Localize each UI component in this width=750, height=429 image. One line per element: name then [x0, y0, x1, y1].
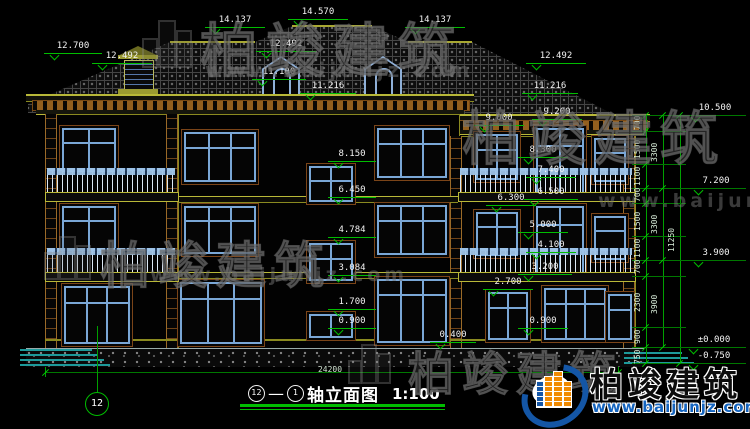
level-marker: 9.000 [474, 112, 524, 126]
axis-grid-line [97, 326, 98, 392]
title-scale: 1:100 [392, 385, 440, 403]
level-marker: 8.300 [518, 144, 568, 158]
roof-ridge-left [170, 41, 255, 43]
balcony-slab [45, 192, 179, 202]
title-underline [240, 409, 445, 410]
dimension-label: 1500 [633, 208, 645, 234]
level-marker: 8.150 [328, 148, 376, 162]
entry-steps-left [20, 349, 92, 351]
level-marker: 6.500 [524, 186, 578, 200]
dimension-label: 3300 [650, 206, 662, 242]
dimension-label: 1500 [633, 136, 645, 162]
window [377, 205, 447, 255]
dimension-label: 700 [633, 257, 645, 277]
level-marker: 11.216 [300, 80, 356, 94]
level-marker: 5.000 [518, 219, 568, 233]
level-marker: 14.570 [288, 6, 348, 20]
level-marker: 3.084 [328, 262, 376, 276]
logo-building-icon [536, 380, 544, 408]
dimension-label: 700 [633, 185, 645, 205]
level-marker: 0.900 [328, 315, 376, 329]
dimension-label: 11250 [667, 214, 679, 266]
level-marker: 9.200 [532, 106, 582, 120]
dimension-label: 3300 [650, 134, 662, 170]
dimension-label: 1100 [633, 237, 645, 259]
dimension-label: 3900 [650, 286, 662, 322]
level-marker: 11.216 [522, 80, 578, 94]
level-marker: 14.137 [405, 14, 465, 28]
level-marker: 0.900 [518, 315, 568, 329]
corner-pilaster [45, 114, 57, 348]
level-marker: 12.492 [526, 50, 586, 64]
balcony-slab [45, 272, 179, 282]
level-marker: 11.100 [252, 66, 306, 80]
logo-building-icon [563, 381, 572, 408]
corner-pilaster [166, 114, 178, 348]
level-marker: 4.100 [526, 239, 576, 253]
drawing-title: 12 — 1 轴立面图 1:100 [248, 381, 440, 406]
window [608, 294, 632, 340]
window [180, 282, 262, 344]
dimension-label: 2300 [633, 289, 645, 315]
dimension-label: 700 [633, 112, 645, 134]
cad-elevation-drawing: 14.137 14.570 14.137 12.700 12.492 12.49… [0, 0, 750, 429]
window [62, 128, 116, 172]
level-marker: 12.492 [256, 38, 316, 52]
level-marker: 0.400 [430, 329, 476, 343]
logo-building-icon [544, 376, 553, 408]
entry-steps-left [20, 354, 98, 356]
level-marker: ±0.000 [683, 334, 745, 348]
title-underline [240, 404, 445, 407]
baijun-logo: 柏竣建筑 www.baijunjz.com [520, 360, 740, 428]
level-marker: 2.700 [483, 276, 533, 290]
level-marker: 3.200 [518, 261, 572, 275]
title-axis-bubble-from: 12 [248, 385, 265, 402]
roof-ridge-center [292, 25, 372, 27]
axis-bubble-12: 12 [85, 392, 109, 416]
level-marker: 7.400 [526, 164, 576, 178]
level-marker: 3.900 [688, 247, 744, 261]
window [377, 128, 447, 178]
roof-ridge-right [408, 41, 472, 43]
level-marker: 12.492 [92, 50, 152, 64]
balcony-railing [47, 168, 175, 195]
window [62, 206, 116, 250]
window [184, 206, 256, 254]
level-marker: 10.500 [685, 102, 745, 116]
logo-building-icon [553, 371, 563, 408]
level-marker: 1.700 [328, 296, 376, 310]
level-marker: 14.137 [205, 14, 265, 28]
title-dash: — [268, 384, 284, 403]
dimension-label: 24200 [300, 365, 360, 374]
level-marker: 6.450 [328, 184, 376, 198]
logo-url-text: www.baijunjz.com [592, 398, 750, 416]
title-axis-bubble-to: 1 [287, 385, 304, 402]
level-marker: 7.200 [688, 175, 744, 189]
entry-steps-left [20, 359, 104, 361]
level-marker: 4.784 [328, 224, 376, 238]
dimension-label: 900 [633, 326, 645, 348]
balcony-railing [47, 248, 175, 275]
window [544, 288, 606, 340]
window [184, 132, 256, 182]
dimension-label: 1100 [633, 165, 645, 187]
title-label: 轴立面图 [307, 381, 379, 406]
